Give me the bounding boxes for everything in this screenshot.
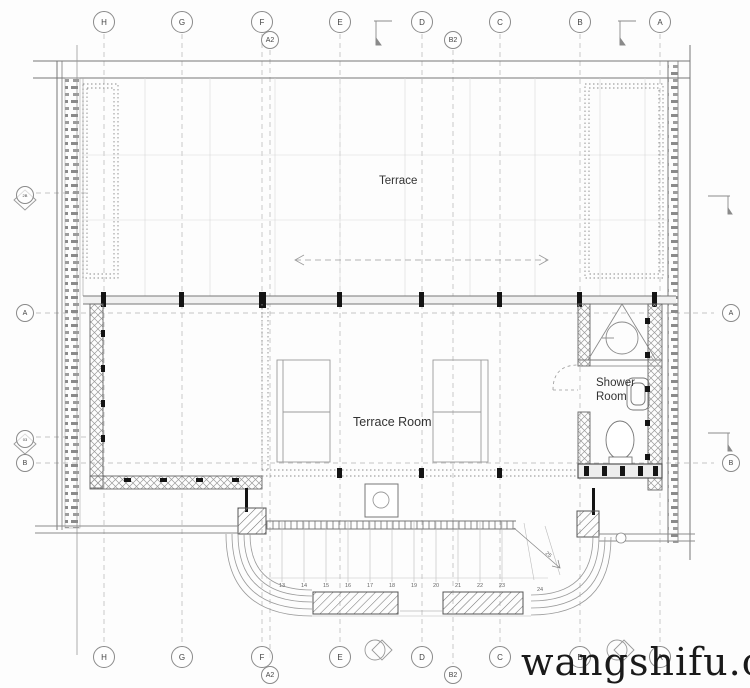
column-marker <box>365 484 398 517</box>
stair-number: 19 <box>406 583 422 589</box>
terrace-room-label: Terrace Room <box>353 415 432 429</box>
shower-triangle <box>588 304 656 360</box>
top-boundary <box>33 61 690 78</box>
shower-east-wall <box>648 304 662 490</box>
landing-blocks <box>312 592 531 616</box>
detail-markers-left <box>14 190 36 454</box>
stair-number: 16 <box>340 583 356 589</box>
shower-room-label-line2: Room <box>596 391 627 403</box>
terrace-label: Terrace <box>379 175 417 187</box>
west-room <box>90 304 262 489</box>
toilet <box>606 421 634 468</box>
grid-bubble-bottom-c: C <box>489 646 511 668</box>
balcony-pier-left <box>238 508 266 534</box>
shower-room-label-line1: Shower <box>596 377 635 389</box>
grid-bubble-left-a: A <box>16 304 34 322</box>
grid-bubble-bottom-g: G <box>171 646 193 668</box>
stair-number: 21 <box>450 583 466 589</box>
grid-bubble-right-b: B <box>722 454 740 472</box>
grid-bubble-top-h: H <box>93 11 115 33</box>
balcony-pier-right <box>577 511 599 537</box>
grid-bubble-top-a2: A2 <box>261 31 279 49</box>
grid-bubble-left-b: B <box>16 454 34 472</box>
shower-door-swing <box>553 365 578 390</box>
grid-bubble-top-b: B <box>569 11 591 33</box>
ramp-marker-circle <box>616 533 626 543</box>
stair-number: 13 <box>274 583 290 589</box>
grid-lines-vertical <box>104 34 660 664</box>
terrace-dotted-openings <box>83 84 663 278</box>
detail-bubble-left-2b: 2B <box>16 186 34 204</box>
stair-direction-arrow <box>514 528 560 568</box>
grid-bubble-top-b2: B2 <box>444 31 462 49</box>
stair-number: 14 <box>296 583 312 589</box>
grid-bubble-bottom-a2: A2 <box>261 666 279 684</box>
grid-bubble-bottom-f: F <box>251 646 273 668</box>
grid-bubble-top-g: G <box>171 11 193 33</box>
interior-wall-f <box>262 304 268 470</box>
grid-bubble-top-c: C <box>489 11 511 33</box>
stair-number: 15 <box>318 583 334 589</box>
grid-bubble-bottom-d: D <box>411 646 433 668</box>
terrace-span-arrow <box>295 255 548 265</box>
balcony-arcs <box>226 534 611 616</box>
grid-bubble-top-f: F <box>251 11 273 33</box>
grid-bubble-bottom-h: H <box>93 646 115 668</box>
stair-number: 17 <box>362 583 378 589</box>
stair-number: 18 <box>384 583 400 589</box>
grid-bubble-top-a: A <box>649 11 671 33</box>
stair-number: 24 <box>532 587 548 593</box>
stair-number: 20 <box>428 583 444 589</box>
stair-number: 23 <box>494 583 510 589</box>
terrace-room-south-wall <box>262 468 578 478</box>
grid-bubble-right-a: A <box>722 304 740 322</box>
shower-south-wall <box>578 464 662 478</box>
stair-number: 22 <box>472 583 488 589</box>
grid-bubble-bottom-b2: B2 <box>444 666 462 684</box>
grid-bubble-top-d: D <box>411 11 433 33</box>
terrace-room-wardrobes <box>277 360 488 462</box>
left-exterior-wall <box>57 61 83 530</box>
floor-plan-canvas: H G F E D C B A A2 B2 H G F E D C B A A2… <box>0 0 750 688</box>
stair-risers <box>282 522 560 582</box>
watermark-text: wangshifu.cn <box>521 640 750 684</box>
grid-bubble-top-e: E <box>329 11 351 33</box>
grid-bubble-bottom-e: E <box>329 646 351 668</box>
detail-bubble-left-03: 03 <box>16 430 34 448</box>
balcony-railing <box>266 521 516 529</box>
